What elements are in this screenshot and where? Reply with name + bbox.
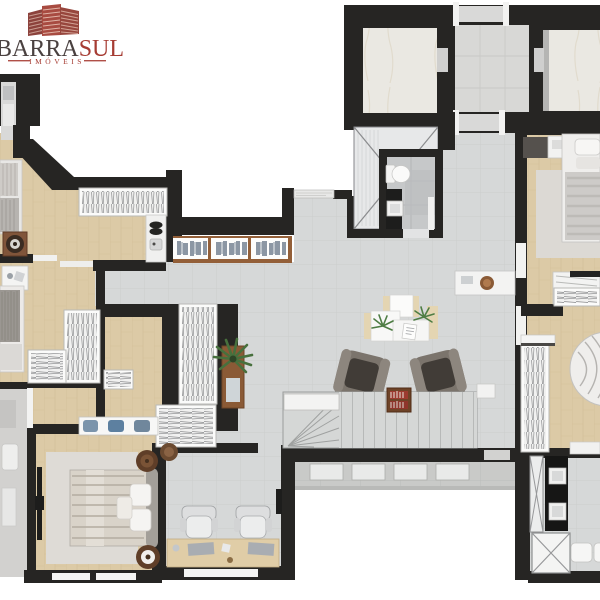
svg-text:IMÓVEIS: IMÓVEIS — [29, 56, 85, 66]
